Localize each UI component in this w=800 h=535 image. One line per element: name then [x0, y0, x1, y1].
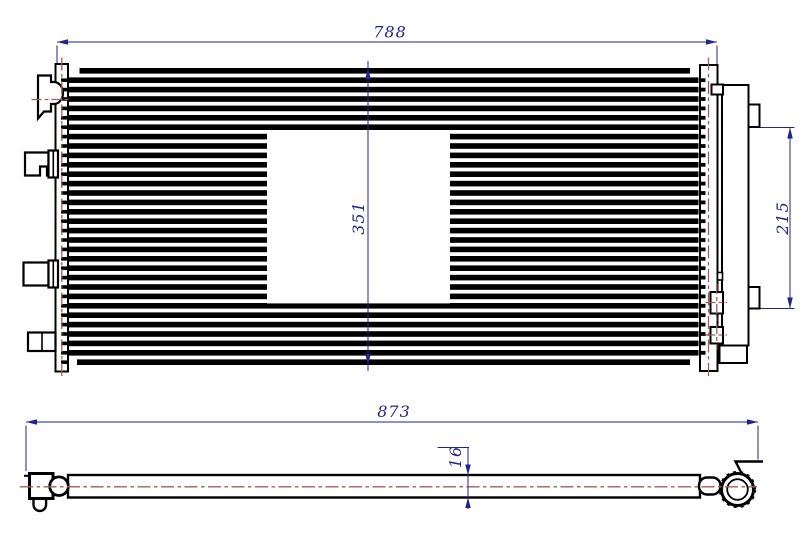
arrow-right	[706, 39, 717, 45]
tube-end-right	[700, 144, 706, 148]
fin-tube-row	[68, 77, 699, 83]
arrow-right	[747, 419, 758, 425]
left-fitting-hook	[34, 499, 47, 511]
tube-end-right	[700, 304, 706, 308]
tube-end-right	[700, 276, 706, 280]
tube-end-right	[700, 154, 706, 158]
tube-end-right	[700, 191, 706, 195]
drier-foot	[720, 346, 748, 364]
mount-bracket-left-3	[24, 263, 49, 286]
tube-end-right	[700, 266, 706, 270]
fin-tube-row	[68, 87, 699, 93]
condenser-drawing: 788 351 215	[0, 0, 800, 535]
tube-end-right	[700, 107, 706, 111]
tube-end-right	[700, 285, 706, 289]
arrow-bottom	[465, 498, 471, 509]
receiver-drier	[722, 85, 749, 346]
tube-end-right	[700, 238, 706, 242]
right-port-oval	[699, 478, 721, 495]
side-view: 873 16	[20, 402, 763, 511]
tube-end-right	[700, 332, 706, 336]
front-view: 788 351 215	[24, 23, 795, 379]
tube-end-right	[700, 323, 706, 327]
arrow-bottom	[787, 298, 793, 309]
tube-end-right	[700, 229, 706, 233]
tube-end-right	[700, 182, 706, 186]
fin-tube-row	[80, 68, 691, 74]
tube-end-right	[700, 351, 706, 355]
tube-end-right	[700, 210, 706, 214]
tube-end-right	[700, 248, 706, 252]
tube-end-right	[700, 163, 706, 167]
tube-end-right	[700, 97, 706, 101]
tube-end-right	[700, 135, 706, 139]
arrow-top	[787, 128, 793, 139]
arrow-left	[57, 39, 68, 45]
fin-tube-row	[68, 303, 699, 309]
mount-bracket-left-2	[25, 153, 49, 176]
tube-end-right	[700, 88, 706, 92]
dim-thickness-label: 16	[446, 446, 465, 468]
tube-end-right	[700, 78, 706, 82]
tube-end-right	[700, 172, 706, 176]
fin-tube-row	[77, 359, 690, 365]
tube-end-right	[700, 116, 706, 120]
fin-tube-row	[68, 331, 699, 337]
tube-end-right	[700, 201, 706, 205]
tube-end-right	[700, 125, 706, 129]
header-top-fitting	[712, 85, 724, 95]
fin-tube-row	[68, 312, 699, 318]
drier-connector	[718, 273, 723, 281]
arrow-top	[465, 465, 471, 476]
fin-tube-row	[68, 341, 699, 347]
fin-tube-row	[68, 350, 699, 356]
dim-bracket-span-label: 215	[773, 201, 792, 236]
tube-end-right	[700, 313, 706, 317]
dimension-bracket-span: 215	[761, 128, 795, 309]
dim-height-label: 351	[349, 201, 368, 235]
drawing-canvas: 788 351 215	[0, 0, 800, 535]
tube-end-right	[700, 257, 706, 261]
arrow-left	[26, 419, 37, 425]
tube-end-right	[700, 295, 706, 299]
tube-end-right	[700, 219, 706, 223]
dimension-width: 788	[57, 23, 717, 65]
fin-tube-row	[68, 115, 699, 121]
fin-tube-row	[68, 106, 699, 112]
dim-length-label: 873	[377, 402, 411, 421]
dimension-length: 873	[26, 402, 758, 471]
fin-tube-row	[68, 322, 699, 328]
fin-tube-row	[68, 124, 699, 130]
drier-cap-outer	[722, 474, 754, 506]
fin-tube-row	[68, 96, 699, 102]
right-fitting-hook	[736, 462, 764, 475]
tube-end-right	[700, 342, 706, 346]
dim-width-label: 788	[373, 23, 407, 42]
